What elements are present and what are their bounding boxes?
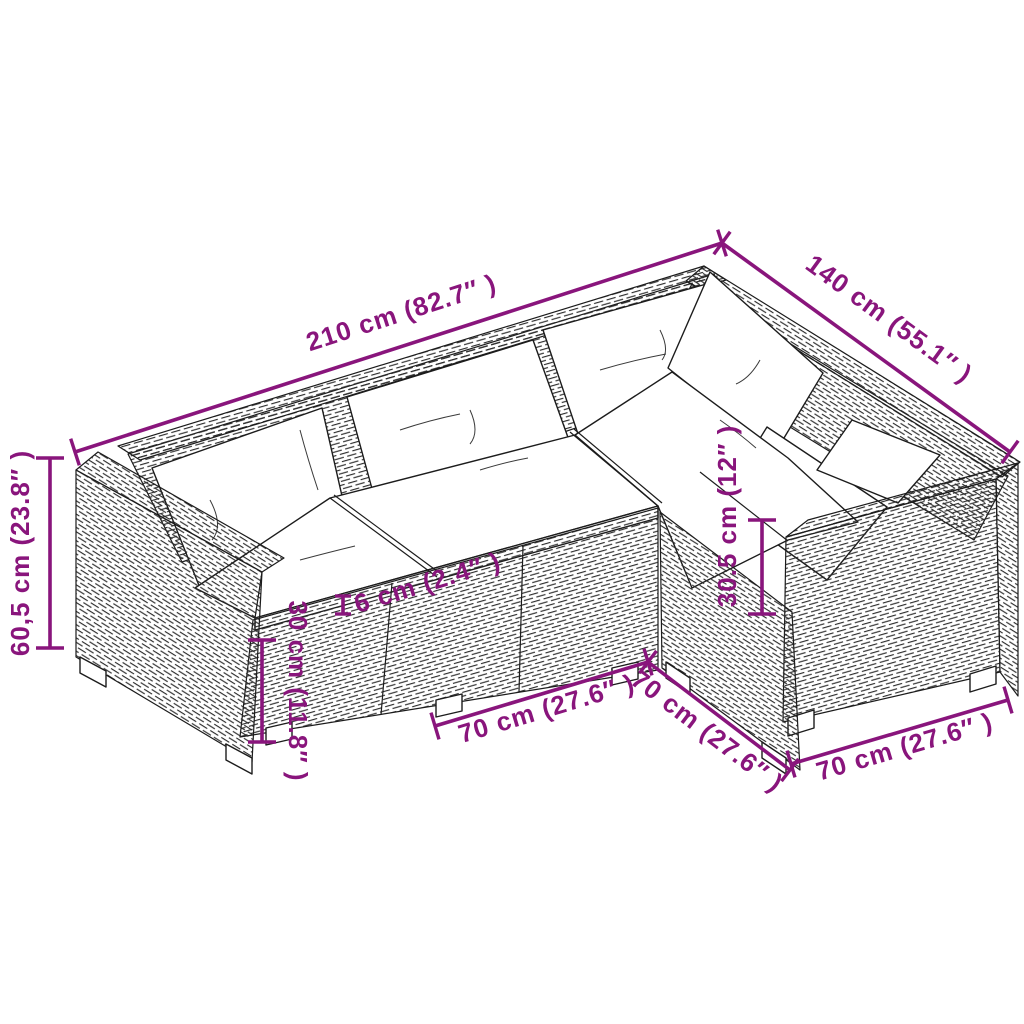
dim-label-backrest-height: 30.5 cm (12″ ) <box>712 425 742 608</box>
right-arm-outer-face <box>996 463 1018 696</box>
sofa-dimension-illustration: 210 cm (82.7″ ) 140 cm (55.1″ ) 60,5 cm … <box>0 0 1024 1024</box>
dim-label-overall-height: 60,5 cm (23.8″ ) <box>5 450 35 656</box>
dim-label-end-module-width: 70 cm (27.6″ ) <box>813 706 997 786</box>
dim-label-base-height: 30 cm (11.8″ ) <box>283 600 313 781</box>
dim-overall-height: 60,5 cm (23.8″ ) <box>5 450 64 656</box>
product-dimension-diagram: 210 cm (82.7″ ) 140 cm (55.1″ ) 60,5 cm … <box>0 0 1024 1024</box>
